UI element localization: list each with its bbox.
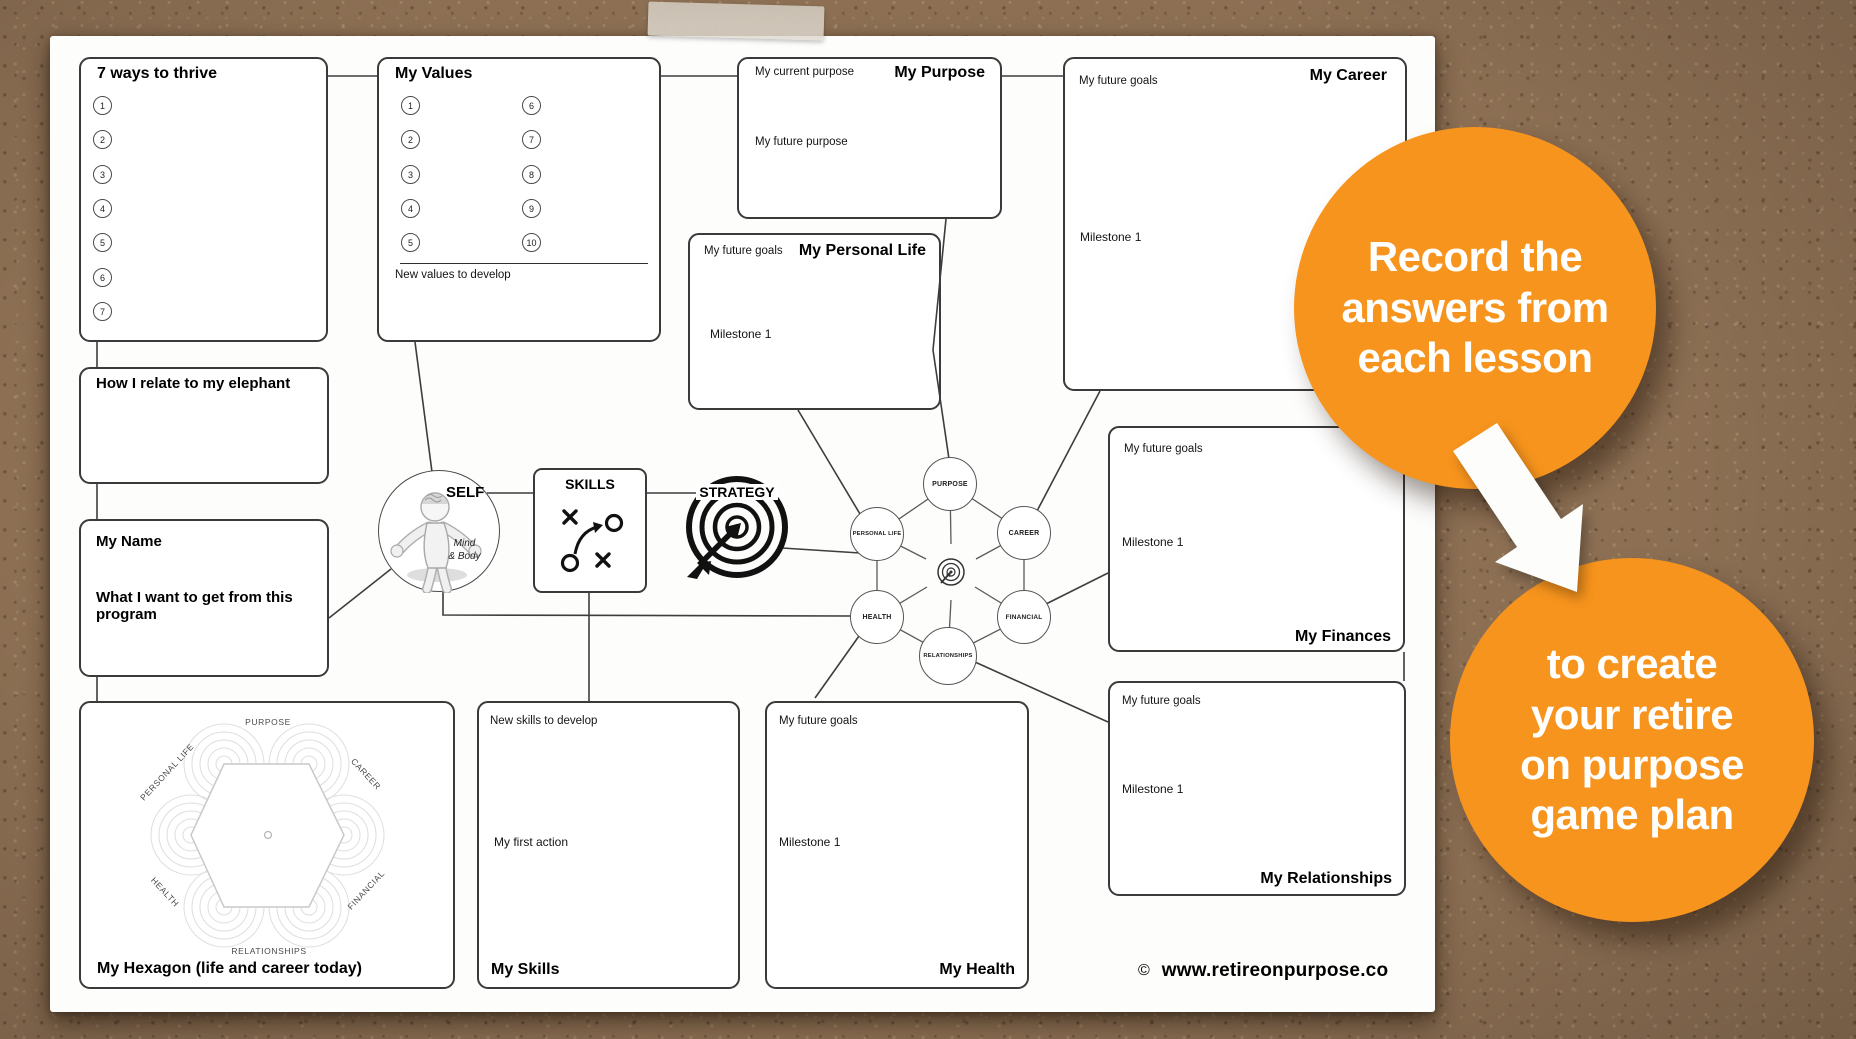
my-career-title: My Career [1310, 67, 1387, 85]
self-circle: SELF Mind & Body [378, 470, 500, 592]
skills-box: SKILLS [533, 468, 647, 593]
number-circle: 3 [401, 165, 420, 184]
box-my-purpose: My current purpose My Purpose My future … [737, 57, 1002, 219]
callout-line: your retire [1531, 690, 1733, 740]
callout-line: game plan [1530, 790, 1733, 840]
my-finances-title: My Finances [1295, 628, 1391, 646]
number-circle: 1 [401, 96, 420, 115]
tactics-diagram-icon [535, 470, 649, 595]
hex-axis-health: HEALTH [149, 875, 181, 909]
box-my-relationships: My future goals Milestone 1 My Relations… [1108, 681, 1406, 896]
number-circle: 4 [401, 199, 420, 218]
box-my-hexagon: PURPOSE PERSONAL LIFE CAREER HEALTH FINA… [79, 701, 455, 989]
network-node-purpose: PURPOSE [923, 457, 977, 511]
network-node-relationships: RELATIONSHIPS [919, 627, 977, 685]
new-values-label: New values to develop [395, 269, 511, 281]
my-personal-life-title: My Personal Life [799, 242, 926, 260]
program-prompt: What I want to get from this program [96, 589, 321, 623]
goals-label: My future goals [1122, 695, 1201, 707]
first-action-label: My first action [494, 835, 568, 849]
number-circle: 10 [522, 233, 541, 252]
body-label: & Body [437, 550, 492, 563]
my-health-title: My Health [939, 961, 1015, 979]
goals-label: My future goals [1124, 443, 1203, 455]
milestone-label: Milestone 1 [710, 327, 771, 341]
callout-line: each lesson [1358, 333, 1593, 383]
network-node-health: HEALTH [850, 590, 904, 644]
seven-ways-title: 7 ways to thrive [97, 65, 217, 83]
milestone-label: Milestone 1 [1122, 782, 1183, 796]
number-circle: 7 [93, 302, 112, 321]
box-my-skills: New skills to develop My first action My… [477, 701, 740, 989]
callout-line: on purpose [1520, 740, 1744, 790]
hexagon-radar-chart: PURPOSE PERSONAL LIFE CAREER HEALTH FINA… [81, 703, 453, 963]
number-circle: 6 [93, 268, 112, 287]
my-name-title: My Name [96, 533, 162, 550]
number-circle: 1 [93, 96, 112, 115]
elephant-title: How I relate to my elephant [96, 375, 290, 392]
box-seven-ways: 7 ways to thrive 1 2 3 4 5 6 7 [79, 57, 328, 342]
mind-body-label: Mind & Body [437, 537, 492, 563]
footer: © www.retireonpurpose.co [1138, 960, 1388, 982]
network-node-career: CAREER [997, 506, 1051, 560]
callout-line: to create [1547, 639, 1718, 689]
my-values-title: My Values [395, 65, 472, 83]
hex-axis-relationships: RELATIONSHIPS [231, 946, 306, 956]
values-divider [400, 263, 648, 264]
goals-label: My future goals [1079, 75, 1158, 87]
box-my-values: My Values 1 2 3 4 5 6 7 8 9 10 New value… [377, 57, 661, 342]
box-my-health: My future goals Milestone 1 My Health [765, 701, 1029, 989]
callout-record-answers: Record the answers from each lesson [1294, 127, 1656, 489]
network-node-personal-life: PERSONAL LIFE [850, 507, 904, 561]
callout-line: answers from [1341, 283, 1608, 333]
strategy-label: STRATEGY [696, 484, 777, 500]
number-circle: 2 [401, 130, 420, 149]
network-node-financial: FINANCIAL [997, 590, 1051, 644]
number-circle: 3 [93, 165, 112, 184]
milestone-label: Milestone 1 [1122, 535, 1183, 549]
milestone-label: Milestone 1 [1080, 230, 1141, 244]
goals-label: My future goals [779, 715, 858, 727]
box-elephant: How I relate to my elephant [79, 367, 329, 484]
goals-label: My future goals [704, 245, 783, 257]
new-skills-label: New skills to develop [490, 715, 597, 727]
mind-label: Mind [437, 537, 492, 550]
my-purpose-title: My Purpose [894, 64, 985, 82]
number-circle: 6 [522, 96, 541, 115]
number-circle: 8 [522, 165, 541, 184]
number-circle: 7 [522, 130, 541, 149]
hex-axis-career: CAREER [349, 756, 383, 791]
bullseye-center-icon [936, 557, 966, 587]
number-circle: 2 [93, 130, 112, 149]
callout-line: Record the [1368, 232, 1582, 282]
my-skills-title: My Skills [491, 961, 559, 979]
corkboard-scene: 7 ways to thrive 1 2 3 4 5 6 7 My Values… [0, 0, 1856, 1039]
number-circle: 5 [93, 233, 112, 252]
self-label: SELF [446, 484, 484, 501]
copyright-icon: © [1138, 962, 1150, 980]
strategy-label-wrap: STRATEGY [677, 484, 797, 500]
box-my-name: My Name What I want to get from this pro… [79, 519, 329, 677]
hex-axis-financial: FINANCIAL [345, 868, 386, 911]
hex-axis-personal-life: PERSONAL LIFE [138, 741, 196, 802]
future-purpose-label: My future purpose [755, 136, 848, 148]
number-circle: 4 [93, 199, 112, 218]
number-circle: 5 [401, 233, 420, 252]
my-hexagon-title: My Hexagon (life and career today) [97, 960, 362, 978]
hex-axis-purpose: PURPOSE [245, 717, 291, 727]
box-my-finances: My future goals Milestone 1 My Finances [1108, 426, 1405, 652]
milestone-label: Milestone 1 [779, 835, 840, 849]
masking-tape [648, 2, 825, 41]
website-url: www.retireonpurpose.co [1162, 960, 1388, 982]
current-purpose-label: My current purpose [755, 66, 854, 78]
hexagon-center-dot [265, 832, 272, 839]
callout-game-plan: to create your retire on purpose game pl… [1450, 558, 1814, 922]
my-relationships-title: My Relationships [1260, 870, 1392, 888]
box-my-personal-life: My future goals My Personal Life Milesto… [688, 233, 941, 410]
number-circle: 9 [522, 199, 541, 218]
